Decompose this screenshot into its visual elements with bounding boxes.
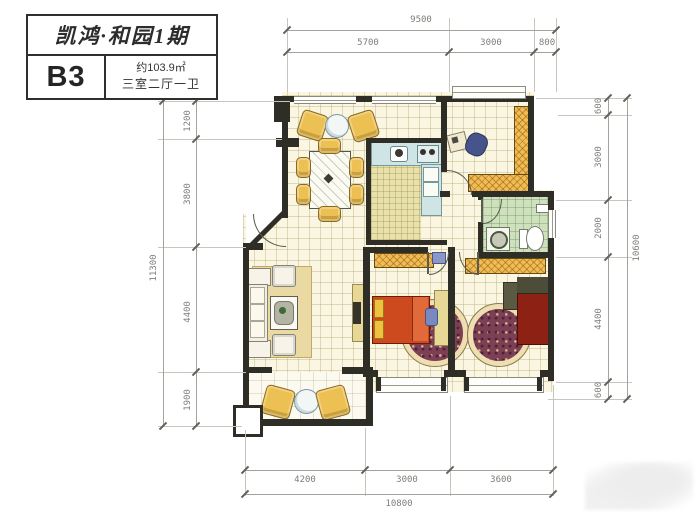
extension-line	[450, 396, 451, 496]
extension-line	[245, 430, 246, 496]
outside-patch	[373, 392, 553, 428]
study-cabinet	[468, 174, 531, 192]
wall	[478, 252, 553, 258]
sofa-cushion	[250, 304, 265, 321]
project-name: 凯鸿·和园1期	[28, 16, 216, 56]
dim-right-total: 10600	[632, 234, 642, 261]
plant	[279, 307, 286, 314]
wall	[537, 377, 542, 391]
kitchen-floor	[371, 164, 421, 240]
dimension-line	[287, 52, 556, 53]
extension-line	[365, 428, 366, 496]
extension-line	[158, 101, 290, 102]
stove-burner	[429, 149, 435, 155]
wall	[243, 243, 263, 250]
window	[372, 96, 436, 104]
extension-line	[558, 115, 632, 116]
desk-chair	[425, 308, 438, 326]
wall	[376, 377, 381, 391]
window	[294, 96, 356, 104]
dim-right-seg: 600	[594, 382, 604, 398]
pillow	[374, 299, 384, 318]
wall	[363, 250, 370, 372]
watermark	[585, 462, 693, 510]
unit-rooms: 三室二厅一卫	[122, 76, 200, 92]
dim-bottom-seg: 3000	[396, 475, 418, 485]
dimension-line	[287, 30, 556, 31]
extension-line	[158, 426, 242, 427]
toilet-bowl	[526, 226, 544, 251]
unit-area: 约103.9㎡	[136, 61, 186, 76]
sink-drain	[395, 149, 403, 157]
title-block: 凯鸿·和园1期 B3 约103.9㎡ 三室二厅一卫	[26, 14, 218, 100]
dim-left-seg: 1900	[183, 389, 193, 411]
wardrobe	[374, 253, 434, 268]
bay-window	[376, 377, 448, 393]
dim-bottom-seg: 4200	[294, 475, 316, 485]
extension-line	[158, 247, 246, 248]
kitchen-appliance	[423, 167, 439, 182]
dim-left-seg: 1200	[183, 110, 193, 132]
bay-window	[452, 86, 526, 99]
wall	[441, 377, 446, 391]
kitchen-wall	[366, 138, 371, 245]
dining-chair	[318, 138, 341, 154]
tick	[549, 490, 557, 498]
extension-line	[536, 98, 632, 99]
dimension-line	[163, 101, 164, 426]
corner-pillar	[233, 405, 263, 437]
wall	[441, 96, 447, 172]
dim-left-seg: 4400	[183, 301, 193, 323]
extension-line	[553, 385, 554, 496]
kitchen-wall	[366, 240, 447, 245]
wall	[528, 96, 534, 193]
dining-chair	[296, 157, 311, 178]
dim-right-seg: 4400	[594, 308, 604, 330]
kitchen-wall	[366, 138, 442, 143]
wall	[248, 367, 272, 373]
extension-line	[158, 139, 282, 140]
pillow	[374, 320, 384, 339]
extension-line	[158, 372, 246, 373]
sofa-cushion	[250, 287, 265, 304]
floor-plan-page: 9500 5700 3000 800 11300 1200 3800 4400 …	[0, 0, 700, 525]
wall	[363, 370, 378, 377]
dimension-line	[608, 98, 609, 399]
dim-top-seg: 5700	[357, 38, 379, 48]
window	[548, 210, 556, 238]
washing-machine-drum	[490, 231, 508, 249]
wall	[464, 377, 469, 391]
armchair	[272, 334, 296, 356]
dimension-line	[245, 494, 553, 495]
dim-right-seg: 2000	[594, 217, 604, 239]
dim-bottom-total: 10800	[385, 499, 412, 509]
extension-line	[556, 257, 632, 258]
extension-line	[556, 200, 632, 201]
wall	[472, 191, 553, 197]
outside-patch	[534, 86, 554, 190]
dim-top-seg: 800	[539, 38, 555, 48]
dim-right-seg: 600	[594, 98, 604, 114]
dimension-line	[627, 98, 628, 399]
dining-chair	[349, 157, 364, 178]
wall	[448, 252, 455, 372]
dim-top-seg: 3000	[480, 38, 502, 48]
stove-burner	[420, 149, 426, 155]
bay-window	[464, 377, 544, 393]
kitchen-appliance	[423, 182, 439, 197]
sofa-cushion	[250, 321, 265, 338]
dim-left-seg: 3800	[183, 183, 193, 205]
sofa-arm	[247, 340, 271, 358]
dim-right-seg: 3000	[594, 146, 604, 168]
dining-chair	[349, 184, 364, 205]
tv	[353, 302, 361, 324]
dim-left-total: 11300	[149, 254, 159, 281]
wall	[444, 370, 466, 377]
unit-label: B3	[28, 56, 106, 98]
dining-chair	[296, 184, 311, 205]
unit-info: 约103.9㎡ 三室二厅一卫	[106, 56, 216, 98]
round-table	[325, 114, 349, 138]
wall	[540, 370, 553, 377]
armchair	[272, 265, 296, 287]
dimension-line	[196, 101, 197, 426]
dimension-line	[245, 470, 553, 471]
headboard	[517, 277, 548, 294]
wall	[274, 96, 290, 122]
dim-bottom-seg: 3600	[490, 475, 512, 485]
dim-top-total: 9500	[410, 15, 432, 25]
wall	[363, 247, 428, 253]
wall	[243, 243, 249, 426]
extension-line	[548, 399, 632, 400]
dining-chair	[318, 206, 341, 222]
